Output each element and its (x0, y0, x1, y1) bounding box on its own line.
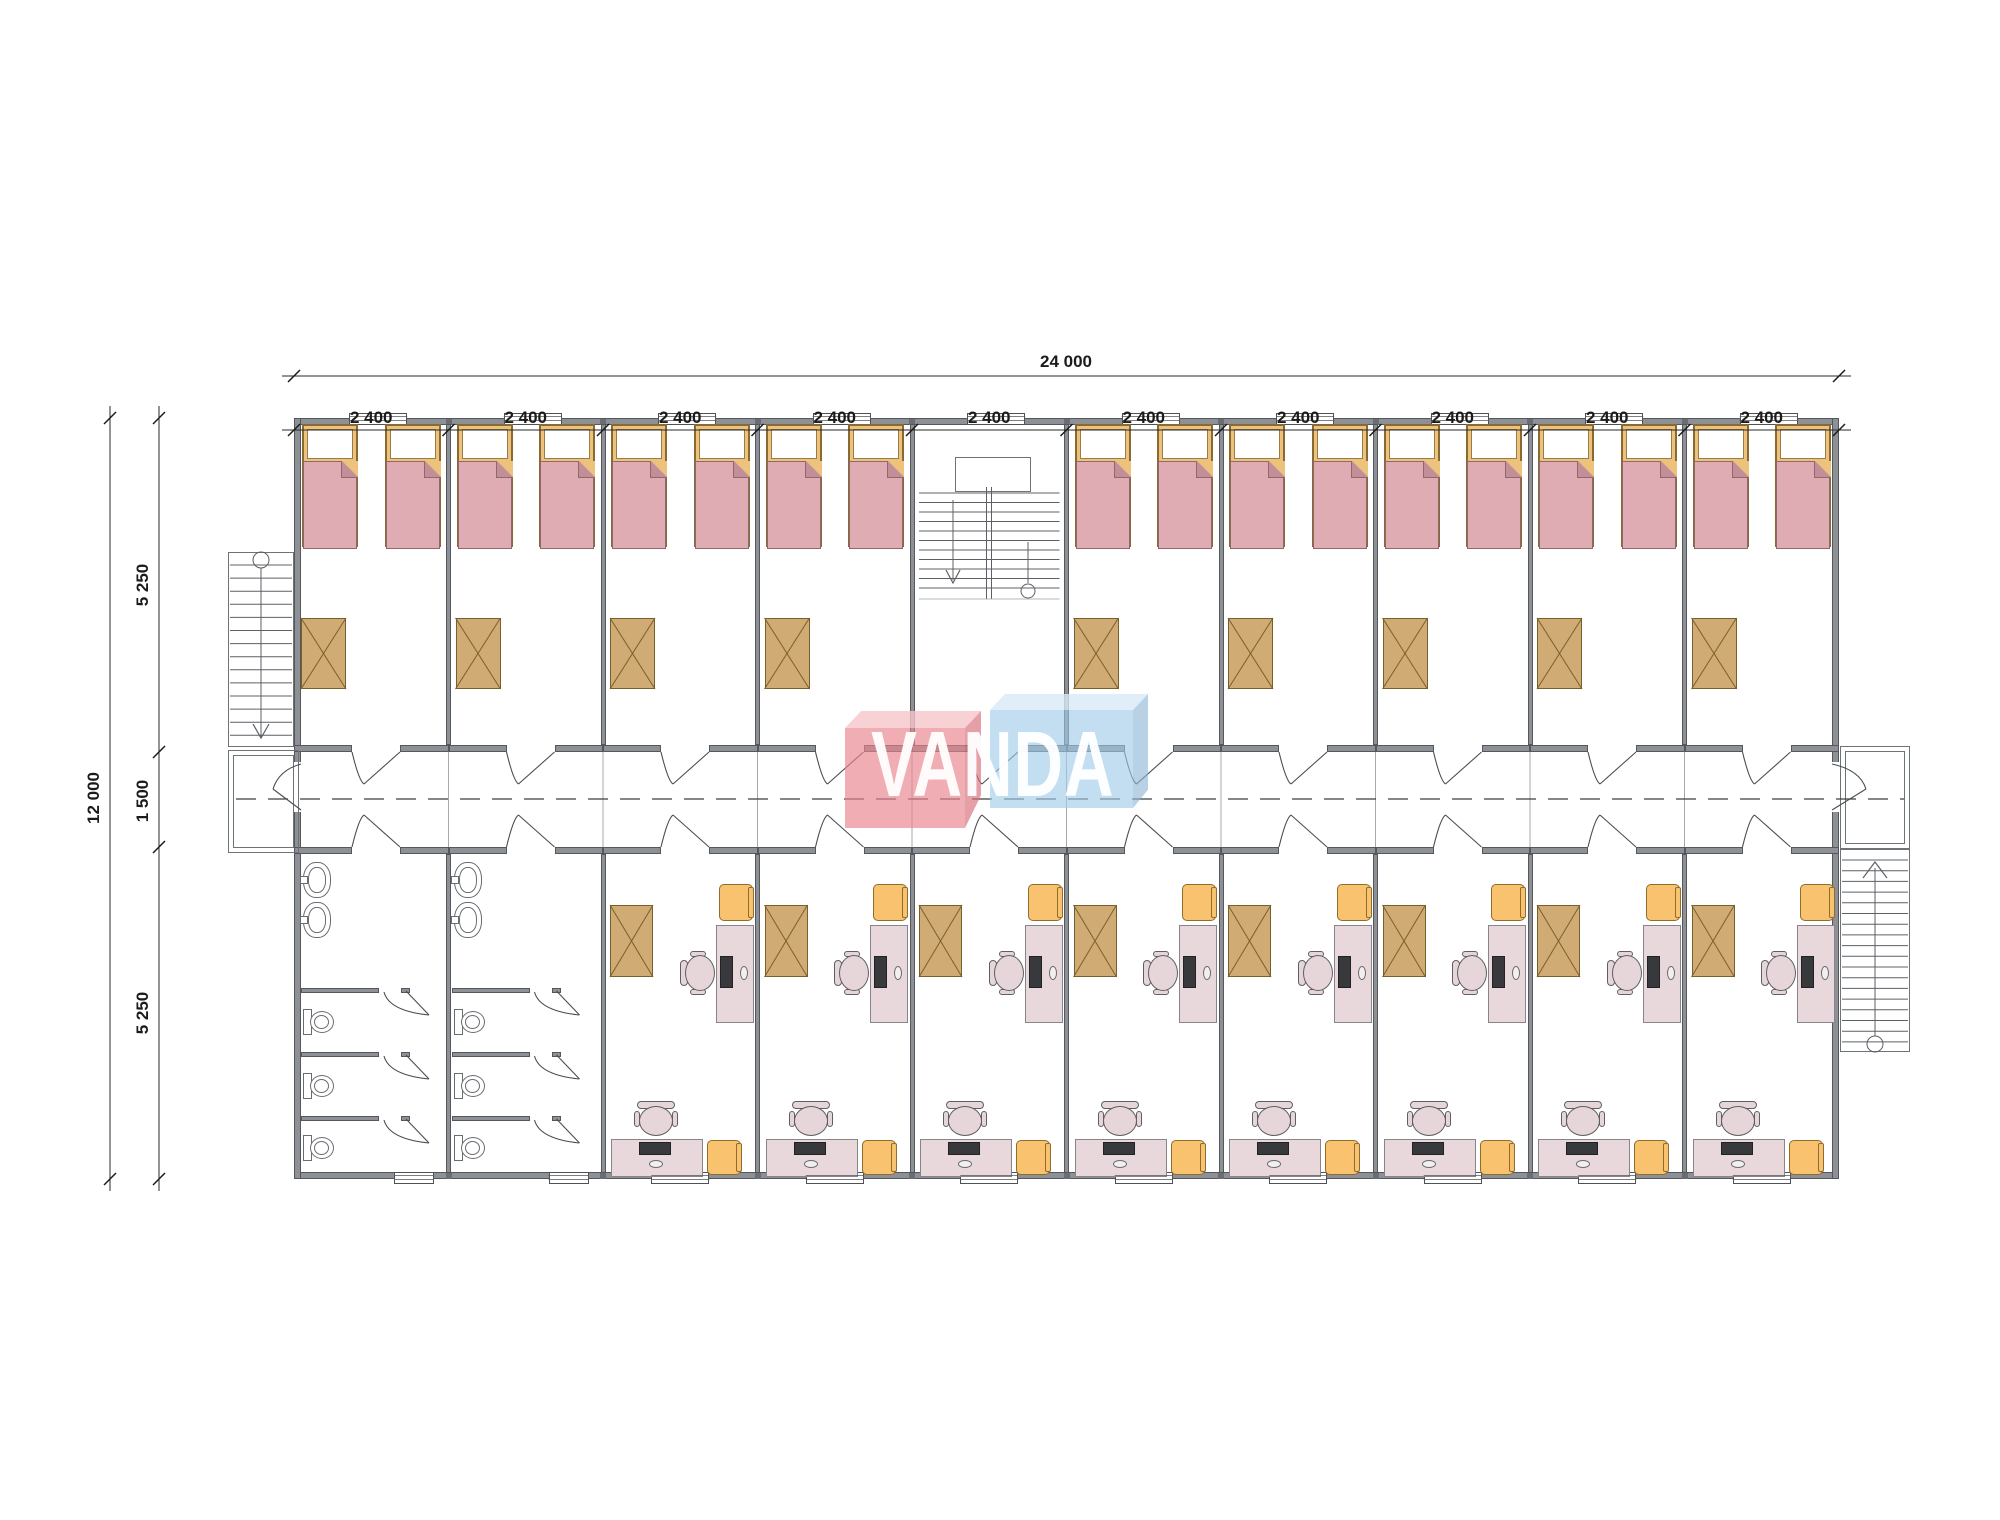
door-arc (661, 752, 673, 784)
plan-line (1291, 752, 1327, 784)
door-arc (507, 815, 519, 847)
plan-line (1446, 752, 1482, 784)
logo-wordmark: VANDA (871, 726, 1114, 802)
door-arc (1588, 815, 1600, 847)
dimension-label-bay-2: 2 400 (486, 408, 566, 428)
door-arc (352, 815, 364, 847)
dimension-label-bay-8: 2 400 (1413, 408, 1493, 428)
door-arc (1588, 752, 1600, 784)
dimension-label-bay-3: 2 400 (640, 408, 720, 428)
door-arc (1434, 815, 1446, 847)
dimension-label-bay-7: 2 400 (1258, 408, 1338, 428)
door-arc (273, 764, 301, 789)
dimension-label-bay-5: 2 400 (949, 408, 1029, 428)
dimension-label-height-seg-2: 1 500 (133, 761, 153, 841)
plan-line (982, 815, 1018, 847)
plan-line (673, 752, 709, 784)
stair-start-marker (253, 552, 269, 568)
door-arc (816, 752, 828, 784)
door-arc (1832, 764, 1866, 789)
door-arc (384, 1120, 429, 1143)
door-arc (1743, 752, 1755, 784)
stair-start-marker (1867, 1036, 1883, 1052)
logo-blue-slab-top (990, 694, 1148, 710)
door-arc (535, 992, 580, 1015)
dimension-label-height-seg-1: 5 250 (133, 545, 153, 625)
door-arc (1279, 752, 1291, 784)
dimension-label-total-height: 12 000 (84, 753, 104, 843)
door-arc (384, 1056, 429, 1079)
plan-line (1291, 815, 1327, 847)
floor-plan-canvas: 24 000 12 000 2 4002 4002 4002 4002 4002… (0, 0, 2000, 1520)
dimension-label-bay-6: 2 400 (1104, 408, 1184, 428)
door-arc (1125, 815, 1137, 847)
door-arc (535, 1120, 580, 1143)
door-arc (970, 815, 982, 847)
dimension-label-total-width: 24 000 (1016, 352, 1116, 372)
logo-blue-slab-side (1133, 694, 1148, 808)
plan-line (1137, 815, 1173, 847)
plan-line (1600, 815, 1636, 847)
plan-line (673, 815, 709, 847)
door-arc (384, 992, 429, 1015)
plan-line (519, 752, 555, 784)
plan-line (519, 815, 555, 847)
plan-line (1600, 752, 1636, 784)
door-arc (816, 815, 828, 847)
door-arc (535, 1056, 580, 1079)
dimension-label-height-seg-3: 5 250 (133, 973, 153, 1053)
plan-line (364, 815, 400, 847)
door-arc (1434, 752, 1446, 784)
door-arc (1743, 815, 1755, 847)
door-arc (507, 752, 519, 784)
dimension-label-bay-4: 2 400 (795, 408, 875, 428)
dimension-label-bay-9: 2 400 (1567, 408, 1647, 428)
door-arc (1279, 815, 1291, 847)
stair-start-marker (1021, 584, 1035, 598)
door-arc (352, 752, 364, 784)
door-arc (661, 815, 673, 847)
plan-line (1755, 815, 1791, 847)
plan-line (364, 752, 400, 784)
dimension-label-bay-10: 2 400 (1722, 408, 1802, 428)
plan-line (1755, 752, 1791, 784)
plan-line (1446, 815, 1482, 847)
dimension-label-bay-1: 2 400 (331, 408, 411, 428)
